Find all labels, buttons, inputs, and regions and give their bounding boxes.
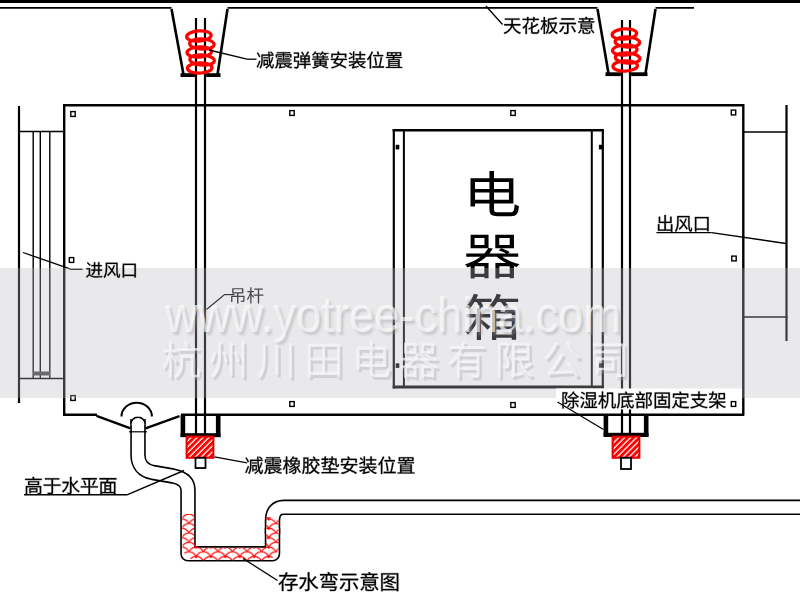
- svg-text:www.yotree-china.com: www.yotree-china.com: [164, 287, 621, 343]
